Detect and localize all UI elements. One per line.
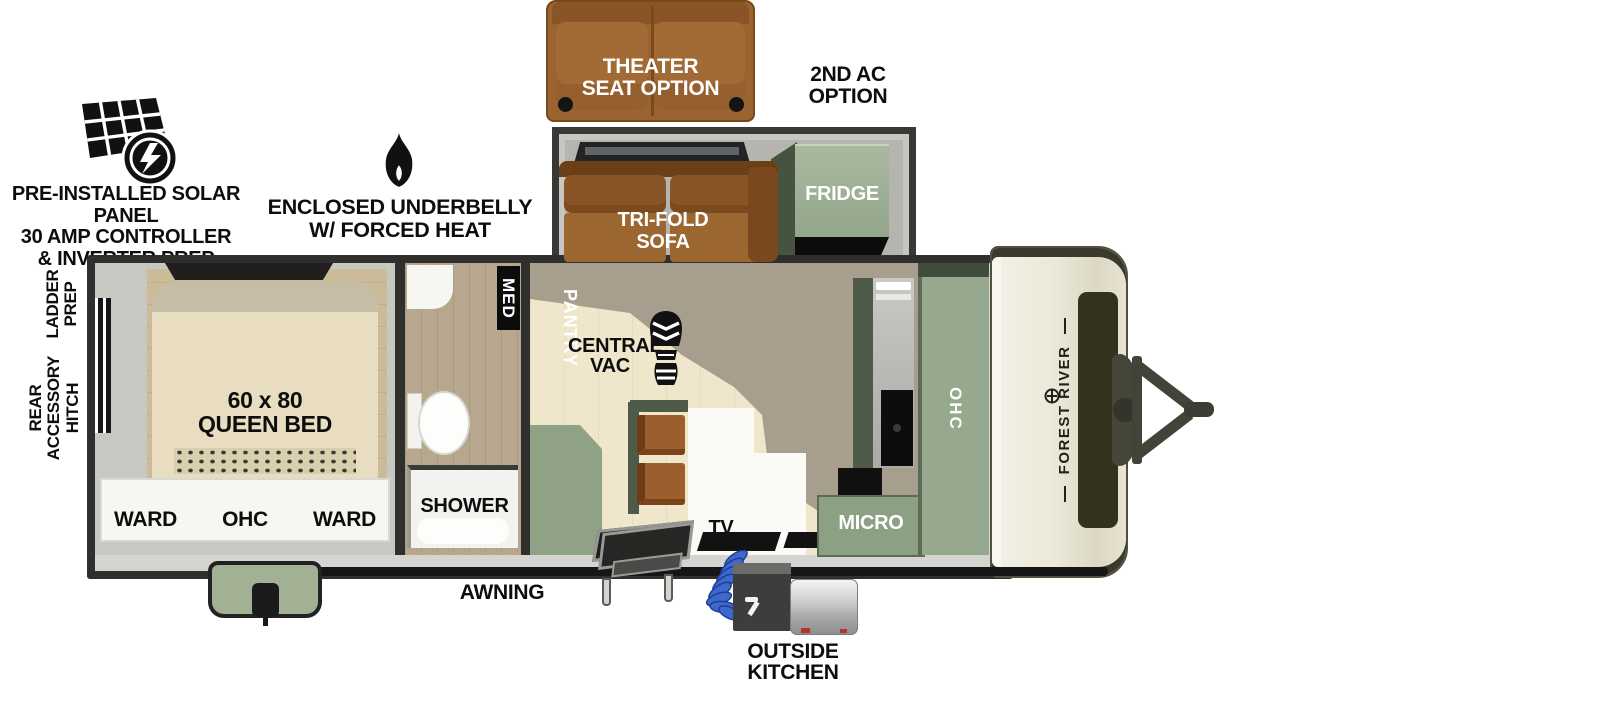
shower-label: SHOWER bbox=[411, 496, 518, 518]
ladder-prep-line1: LADDER bbox=[44, 269, 62, 339]
bedroom: 60 x 80 QUEEN BED WARD OHC WARD bbox=[95, 263, 395, 555]
floor-mat bbox=[697, 532, 781, 551]
fridge-label: FRIDGE bbox=[795, 184, 889, 206]
central-vac-label: CENTRAL VAC bbox=[568, 336, 652, 376]
theater-seat-option: THEATER SEAT OPTION bbox=[546, 0, 755, 122]
bedroom-ohc-label: OHC bbox=[222, 509, 268, 532]
theater-seat-label: THEATER SEAT OPTION bbox=[548, 56, 753, 100]
kitchen-counter-edge bbox=[853, 278, 873, 470]
pantry-cabinet bbox=[530, 425, 602, 555]
medicine-cabinet: MED bbox=[497, 266, 520, 330]
theater-seat-label-line2: SEAT OPTION bbox=[548, 78, 753, 100]
dinette-table-ledge bbox=[630, 400, 688, 412]
queen-bed: 60 x 80 QUEEN BED bbox=[152, 282, 378, 480]
flame-icon bbox=[379, 133, 419, 189]
outside-kitchen-top bbox=[733, 563, 791, 574]
outside-kitchen-griddle bbox=[790, 579, 858, 635]
brand-text: FOREST RIVER bbox=[1056, 346, 1073, 475]
bathroom-sink bbox=[407, 265, 453, 309]
solar-callout-line2: 30 AMP CONTROLLER bbox=[0, 227, 252, 249]
micro-label: MICRO bbox=[819, 513, 923, 535]
valve-mark bbox=[801, 628, 810, 633]
storage-box-latch bbox=[252, 583, 279, 617]
wardrobe-cabinet: WARD OHC WARD bbox=[100, 478, 390, 542]
theater-seat-label-line1: THEATER bbox=[548, 56, 753, 78]
rear-hitch-line3: HITCH bbox=[64, 352, 82, 464]
central-vac-line1: CENTRAL bbox=[568, 336, 652, 356]
awning-label: AWNING bbox=[444, 582, 560, 605]
underbelly-line2: W/ FORCED HEAT bbox=[258, 219, 542, 242]
rear-hitch-line1: REAR bbox=[27, 352, 45, 464]
counter-gap bbox=[838, 468, 882, 496]
ward-right-label: WARD bbox=[313, 509, 376, 532]
kitchen-ohc-label: OHC bbox=[918, 263, 989, 555]
underbelly-line1: ENCLOSED UNDERBELLY bbox=[258, 196, 542, 219]
kitchen-sink-drainer bbox=[876, 294, 911, 300]
ladder-prep-line2: PREP bbox=[62, 269, 80, 339]
solar-panel-icon bbox=[68, 96, 178, 186]
storage-box-pin bbox=[263, 615, 268, 626]
stool bbox=[637, 463, 685, 505]
sofa-label-line2: SOFA bbox=[583, 231, 743, 253]
second-ac-line2: OPTION bbox=[800, 86, 896, 108]
valve-mark bbox=[840, 629, 847, 633]
stool bbox=[637, 415, 685, 455]
bootprint-icon bbox=[646, 310, 686, 388]
bedroom-window bbox=[95, 298, 111, 433]
trailer-body: 60 x 80 QUEEN BED WARD OHC WARD MED SHOW… bbox=[87, 255, 1013, 579]
bath-living-wall bbox=[521, 263, 530, 555]
second-ac-line1: 2ND AC bbox=[800, 64, 896, 86]
bed-label: 60 x 80 QUEEN BED bbox=[152, 388, 378, 436]
bathroom: MED SHOWER bbox=[405, 263, 521, 555]
outside-kitchen-line1: OUTSIDE bbox=[722, 641, 864, 662]
ladder-prep-callout: LADDER PREP bbox=[44, 269, 80, 339]
storage-box bbox=[208, 561, 322, 618]
second-ac-callout: 2ND AC OPTION bbox=[800, 64, 896, 108]
cooktop bbox=[881, 390, 913, 466]
sofa-back-cushion-left bbox=[564, 175, 666, 213]
sofa-armrest bbox=[748, 167, 778, 262]
sofa-label-line1: TRI-FOLD bbox=[583, 209, 743, 231]
ward-left-label: WARD bbox=[114, 509, 177, 532]
tri-fold-sofa: TRI-FOLD SOFA bbox=[559, 161, 778, 262]
brand-dash bbox=[1064, 318, 1066, 334]
kitchen-sink bbox=[876, 282, 911, 290]
skylight bbox=[165, 263, 333, 280]
living-kitchen-area: PANTRY CENTRAL VAC TV bbox=[530, 263, 989, 555]
underbelly-callout: ENCLOSED UNDERBELLY W/ FORCED HEAT bbox=[258, 196, 542, 242]
outside-kitchen-callout: OUTSIDE KITCHEN bbox=[722, 641, 864, 683]
microwave-cabinet: MICRO bbox=[817, 495, 925, 557]
step-leg bbox=[602, 578, 611, 606]
floorplan: PRE-INSTALLED SOLAR PANEL 30 AMP CONTROL… bbox=[0, 0, 1600, 716]
brand-wordmark: FOREST RIVER bbox=[1052, 298, 1078, 522]
rear-hitch-line2: ACCESSORY bbox=[45, 352, 63, 464]
sofa-label: TRI-FOLD SOFA bbox=[583, 209, 743, 253]
bed-head-band bbox=[152, 282, 378, 312]
faucet-icon bbox=[747, 601, 759, 616]
outside-kitchen-line2: KITCHEN bbox=[722, 662, 864, 683]
central-vac-line2: VAC bbox=[568, 356, 652, 376]
bedroom-bath-wall bbox=[395, 263, 405, 555]
bed-label-line2: QUEEN BED bbox=[152, 412, 378, 436]
outside-kitchen-unit bbox=[733, 563, 791, 631]
bed-foot-runner bbox=[174, 448, 356, 474]
toilet bbox=[418, 391, 470, 455]
fridge: FRIDGE bbox=[795, 144, 889, 239]
shower: SHOWER bbox=[407, 465, 518, 548]
step-leg bbox=[664, 574, 673, 602]
shower-pan bbox=[417, 518, 509, 544]
rear-accessory-hitch-callout: REAR ACCESSORY HITCH bbox=[27, 352, 81, 464]
trailer-hitch bbox=[1112, 350, 1216, 470]
brand-dash bbox=[1064, 486, 1066, 502]
bed-label-line1: 60 x 80 bbox=[152, 388, 378, 412]
solar-callout-line1: PRE-INSTALLED SOLAR PANEL bbox=[0, 184, 252, 227]
